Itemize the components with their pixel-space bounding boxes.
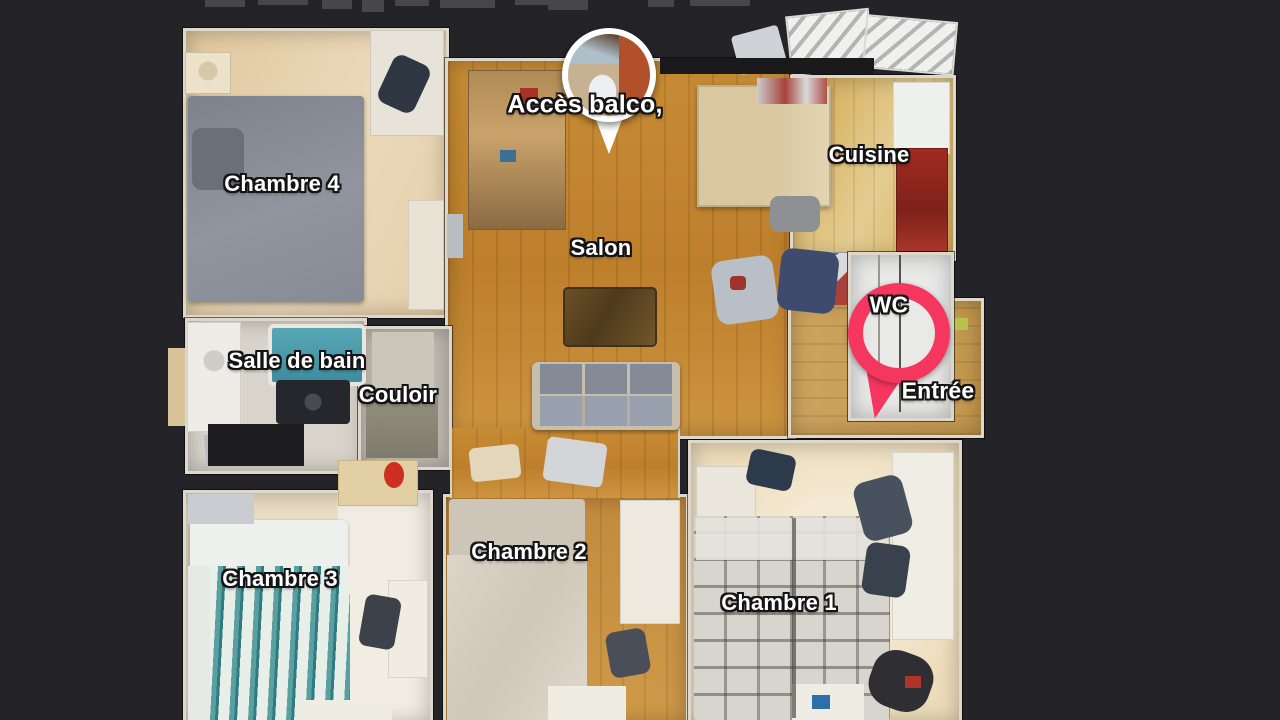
dresser [338,460,418,506]
room-label-salle-de-bain: Salle de bain [228,348,365,374]
blanket-seam [792,518,796,718]
mesh-fragment [440,0,495,8]
mesh-fragment [648,0,674,7]
room-label-entree: Entrée [902,378,975,405]
blue-object [812,695,830,709]
mesh-fragment [258,0,308,5]
armchair [710,254,780,326]
desk-chambre-2 [620,500,680,624]
wall-void [660,58,874,74]
blanket-fold [188,566,210,720]
room-label-chambre-2: Chambre 2 [471,539,587,565]
floorplan-3d-view: Chambre 4 Accès balco, Cuisine Salon WC … [0,0,1280,720]
sofa-back-cushions [540,364,672,394]
sofa-seat-cushions [540,396,672,426]
shelf-clutter [500,150,516,162]
room-label-salon: Salon [571,235,632,261]
mesh-fragment [395,0,429,6]
floor-debris [542,436,608,488]
mesh-fragment [322,0,352,9]
balcony-stairs [862,14,958,76]
floor-clutter-red [905,676,921,688]
bed-chambre-4 [188,96,364,302]
bedside-table [185,52,231,94]
desk-chair [604,627,651,679]
floor-debris [468,443,521,482]
mesh-fragment [188,494,254,524]
radiator [447,214,463,258]
low-cabinet [296,700,392,720]
dining-chair [770,196,820,232]
doormat [952,318,968,330]
room-label-couloir: Couloir [359,382,437,408]
room-label-wc: WC [870,292,909,319]
room-label-cuisine: Cuisine [829,142,910,168]
mesh-fragment [515,0,551,5]
mesh-fragment [548,0,588,10]
mesh-fragment [690,0,750,6]
bed-chambre-3-pillows [190,520,348,568]
washing-machine [276,380,350,424]
room-label-chambre-1: Chambre 1 [721,590,837,616]
floor-void [208,424,304,466]
wardrobe [408,200,444,310]
balcony-photo-pin[interactable] [562,28,656,140]
coffee-table [563,287,657,347]
bathroom-counter [187,322,241,432]
mesh-fragment [362,0,384,12]
desk-chair [861,541,912,599]
armchair [776,247,840,315]
pin-label-acces-balcon: Accès balco, [507,91,662,120]
armchair-cushion [730,276,746,290]
low-cabinet [548,686,626,720]
mesh-fragment [168,348,185,426]
mesh-fragment [205,0,245,7]
dresser-red-object [384,462,404,488]
room-label-chambre-3: Chambre 3 [222,566,338,592]
table-clutter [757,78,827,104]
room-label-chambre-4: Chambre 4 [224,171,340,197]
